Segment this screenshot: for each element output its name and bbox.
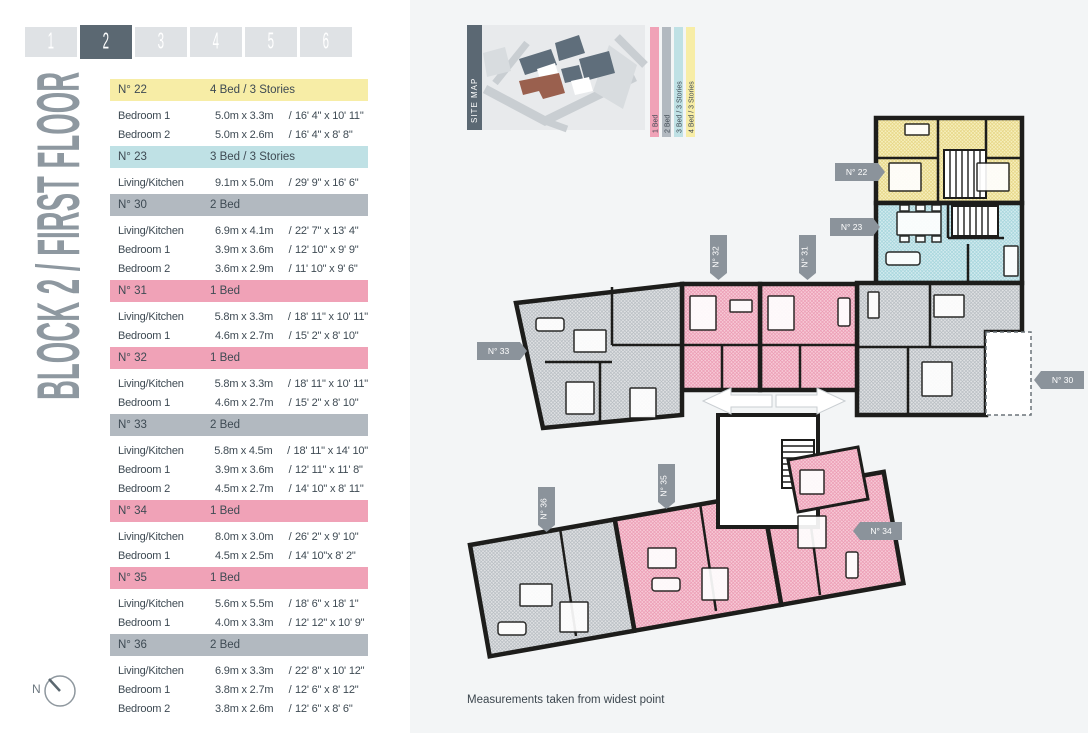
unit-tag-22[interactable]: N° 22 [835,163,885,181]
unit-tag-34[interactable]: N° 34 [853,522,902,540]
tab-number: 6 [323,29,329,55]
unit-tag-label: N° 35 [659,475,669,497]
tab-number: 5 [268,29,274,55]
tab-1[interactable]: 1 [25,27,77,57]
legend-label: 3 Bed / 3 Stories [677,81,684,133]
unit-tag-36[interactable]: N° 36 [538,487,555,532]
unit-tag-23[interactable]: N° 23 [830,218,880,236]
unit-tag-31[interactable]: N° 31 [799,235,816,280]
unit-tag-label: N° 30 [1052,375,1074,385]
north-compass: N [26,664,96,720]
unit-tag-label: N° 34 [870,526,892,536]
unit-tag-label: N° 23 [841,222,863,232]
tab-number: 3 [158,29,164,55]
unit-tag-label: N° 33 [488,346,510,356]
compass-north-label: N [32,682,41,696]
tab-number: 1 [48,29,54,55]
site-map: SITE MAP [467,25,645,130]
measurement-footnote: Measurements taken from widest point [467,694,665,706]
tab-number: 4 [213,29,219,55]
unit-tag-33[interactable]: N° 33 [477,342,527,360]
legend-label: 2 Bed [665,115,672,133]
floor-plan-canvas: SITE MAP 1 Bed2 Bed3 Bed / 3 Stories4 Be… [0,0,1088,733]
tab-3[interactable]: 3 [135,27,187,57]
unit-tag-35[interactable]: N° 35 [658,464,675,509]
unit-tag-label: N° 36 [539,498,549,520]
block-tab-bar: 123456 [25,27,352,59]
legend-label: 4 Bed / 3 Stories [689,81,696,133]
unit-tag-32[interactable]: N° 32 [710,235,727,280]
tab-4[interactable]: 4 [190,27,242,57]
tab-6[interactable]: 6 [300,27,352,57]
unit-tag-30[interactable]: N° 30 [1034,371,1084,389]
tab-2[interactable]: 2 [80,25,132,59]
tab-number: 2 [103,29,109,55]
staircase-icon [952,206,998,236]
unit-30-dashed-area [986,332,1031,415]
unit-tag-label: N° 32 [711,246,721,268]
site-map-label: SITE MAP [470,78,479,123]
tab-5[interactable]: 5 [245,27,297,57]
legend-label: 1 Bed [653,115,660,133]
legend: 1 Bed2 Bed3 Bed / 3 Stories4 Bed / 3 Sto… [650,27,696,137]
unit-tag-label: N° 22 [846,167,868,177]
unit-tag-label: N° 31 [800,246,810,268]
